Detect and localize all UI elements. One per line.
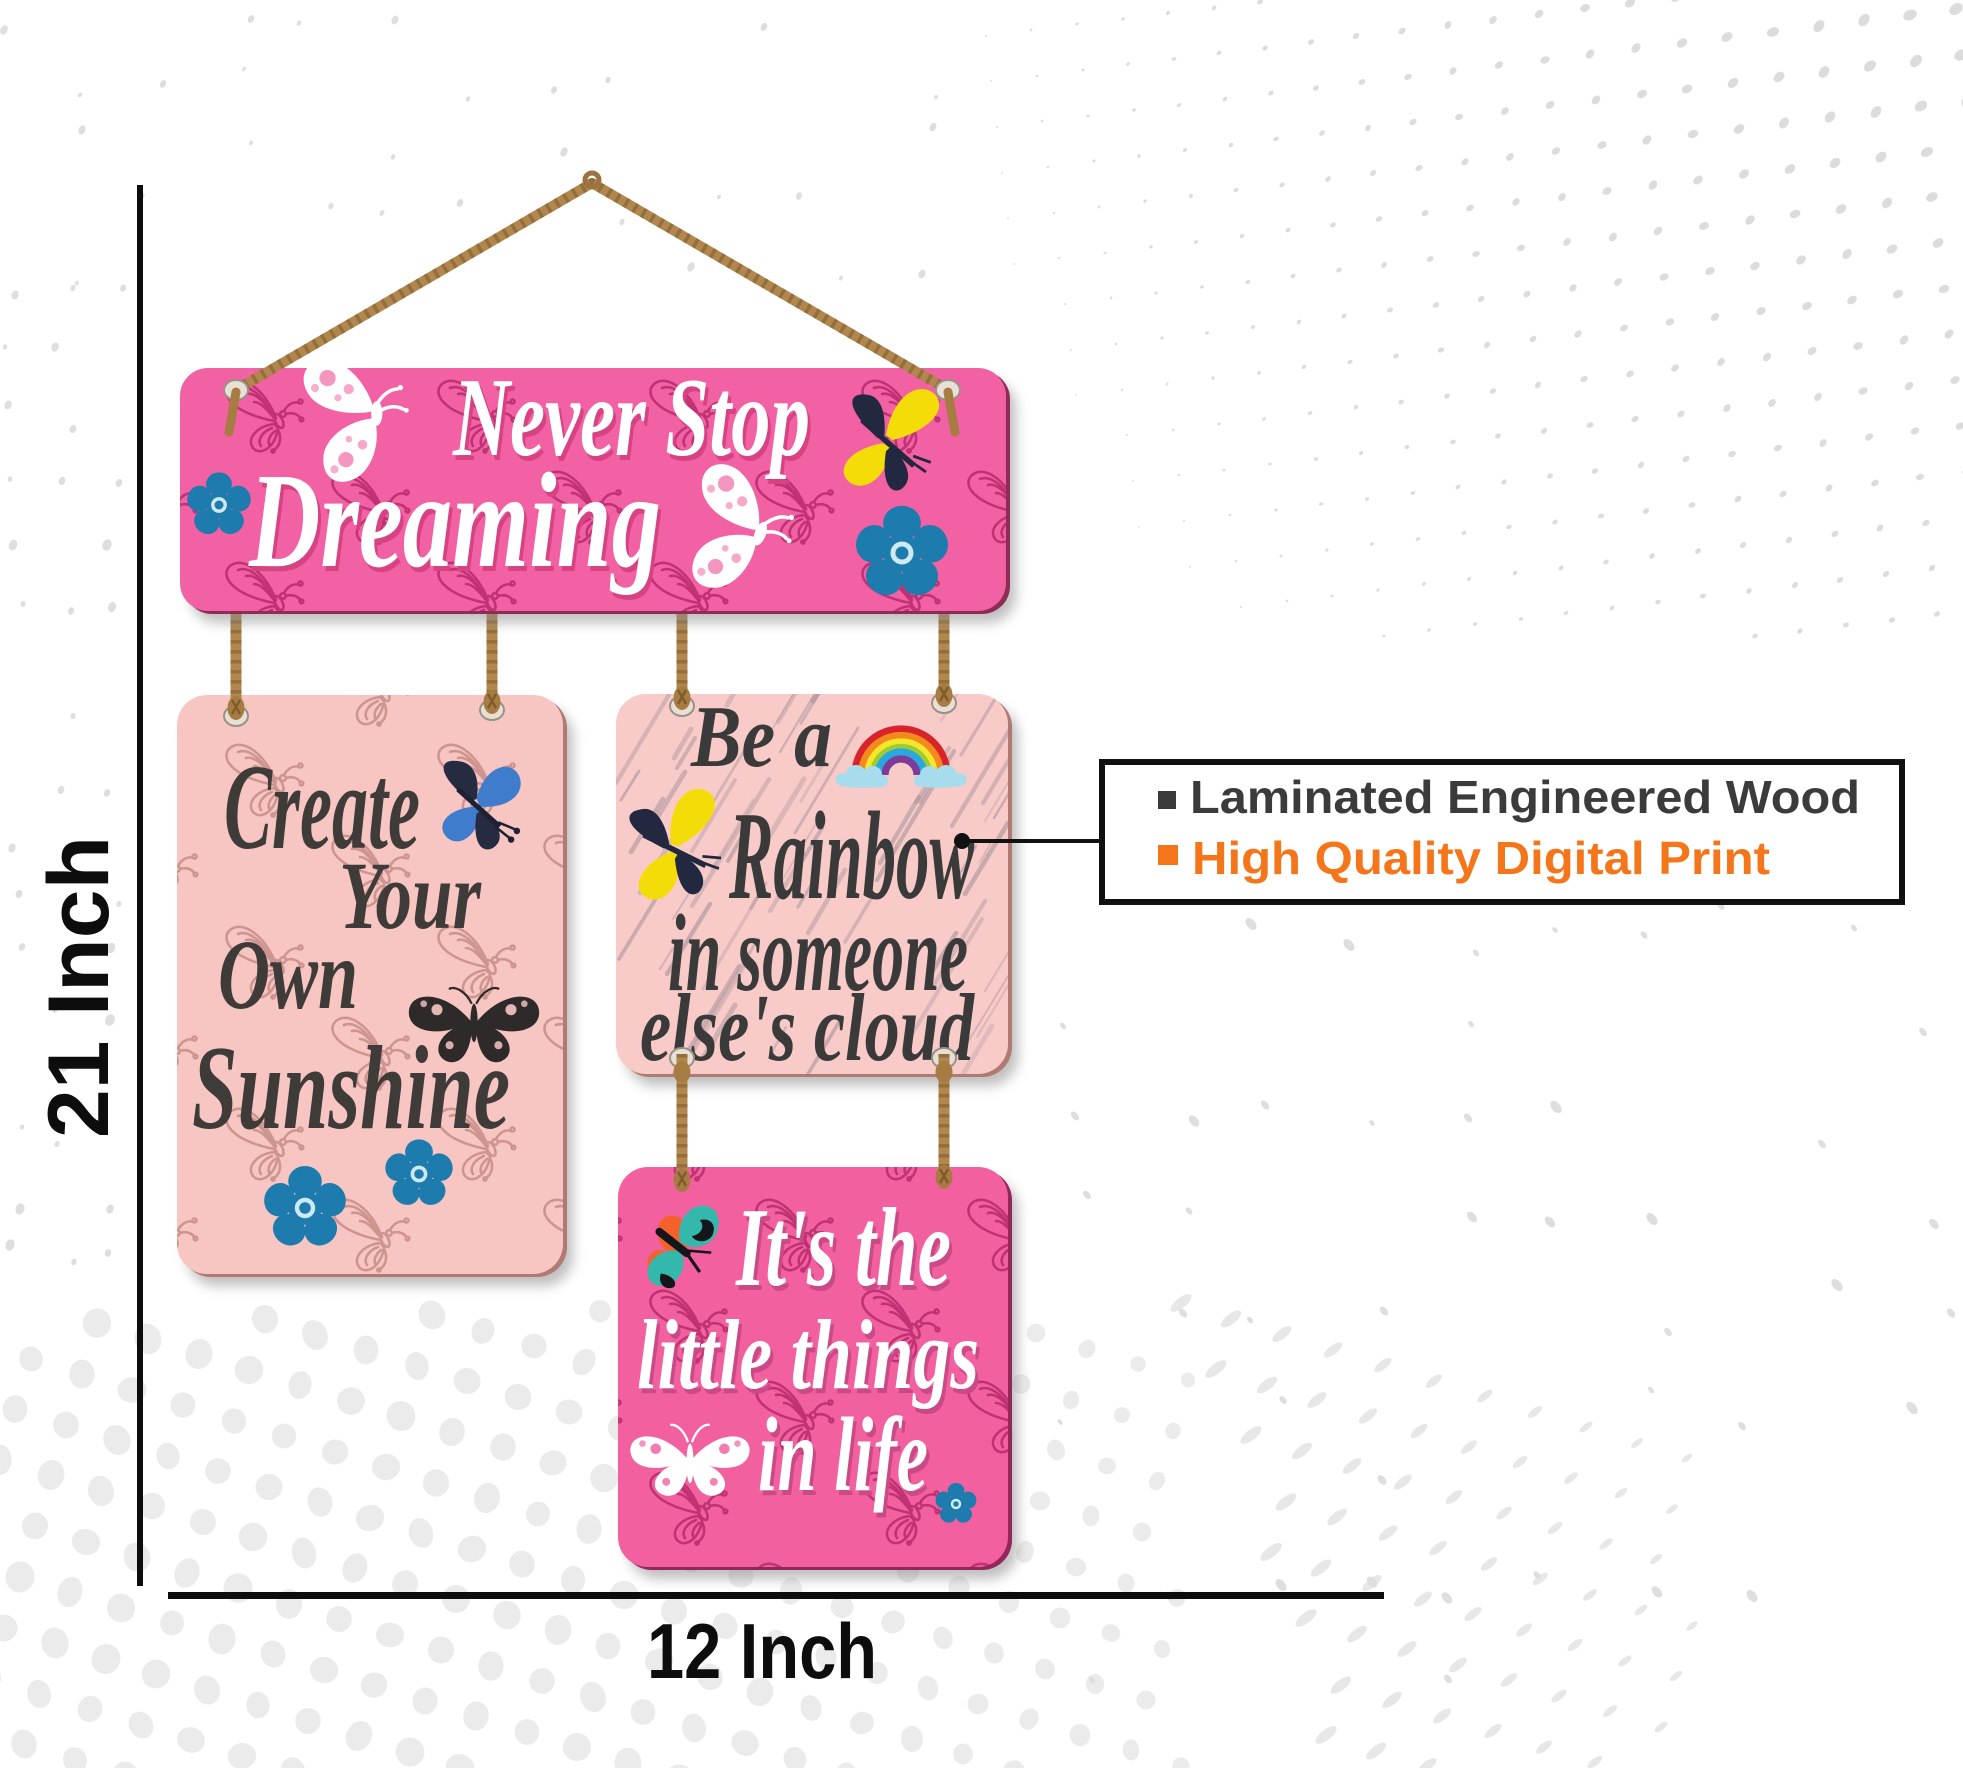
svg-text:High Quality Digital Print: High Quality Digital Print	[1192, 832, 1770, 884]
svg-text:little things: little things	[637, 1299, 979, 1410]
svg-text:21 Inch: 21 Inch	[31, 836, 127, 1138]
svg-text:Sunshine: Sunshine	[192, 1021, 510, 1154]
svg-text:Dreaming: Dreaming	[248, 446, 661, 596]
svg-text:12 Inch: 12 Inch	[647, 1607, 877, 1695]
svg-text:It's the: It's the	[735, 1186, 951, 1310]
svg-text:Be a: Be a	[690, 689, 832, 786]
svg-text:in life: in life	[758, 1396, 928, 1513]
svg-text:Your: Your	[339, 842, 482, 949]
svg-text:Laminated Engineered Wood: Laminated Engineered Wood	[1190, 771, 1860, 823]
svg-text:Own: Own	[218, 919, 358, 1030]
